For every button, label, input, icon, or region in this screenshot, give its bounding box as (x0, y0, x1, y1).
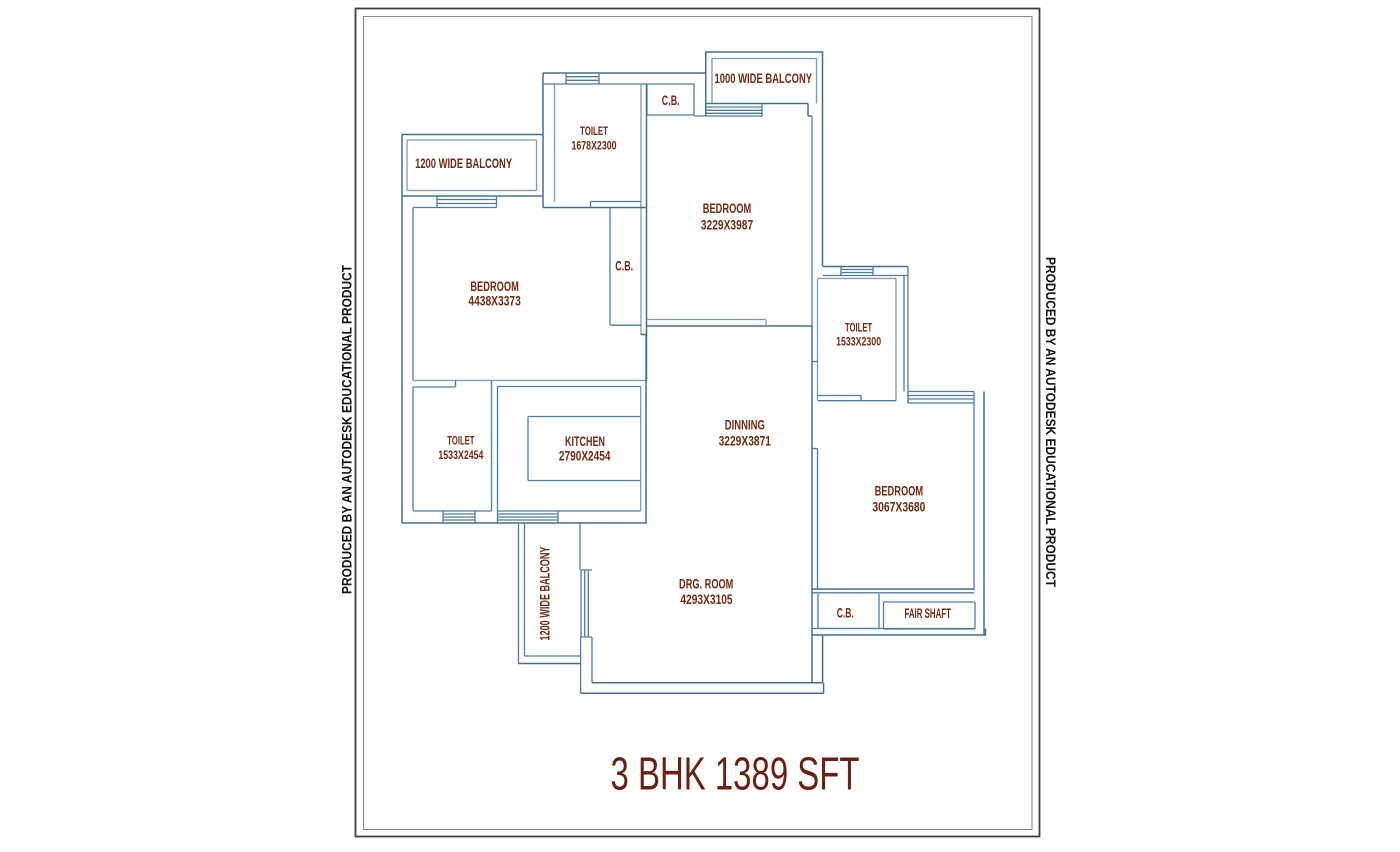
svg-text:1533X2300: 1533X2300 (836, 335, 881, 349)
svg-text:4293X3105: 4293X3105 (680, 592, 733, 607)
svg-text:3229X3987: 3229X3987 (701, 217, 753, 232)
svg-text:3067X3680: 3067X3680 (872, 500, 925, 515)
svg-text:TOILET: TOILET (845, 321, 873, 335)
svg-text:BEDROOM: BEDROOM (470, 279, 519, 294)
svg-text:1000 WIDE BALCONY: 1000 WIDE BALCONY (715, 71, 813, 86)
svg-text:KITCHEN: KITCHEN (565, 434, 605, 449)
svg-text:1200 WIDE BALCONY: 1200 WIDE BALCONY (538, 547, 553, 641)
svg-text:BEDROOM: BEDROOM (703, 201, 752, 216)
svg-text:TOILET: TOILET (580, 124, 608, 138)
svg-text:C.B.: C.B. (615, 259, 633, 274)
svg-text:PRODUCED BY AN AUTODESK EDUCAT: PRODUCED BY AN AUTODESK EDUCATIONAL PROD… (338, 265, 354, 594)
svg-text:2790X2454: 2790X2454 (559, 449, 611, 464)
svg-text:3229X3871: 3229X3871 (719, 433, 772, 448)
svg-text:DRG. ROOM: DRG. ROOM (679, 577, 733, 592)
svg-text:1533X2454: 1533X2454 (438, 448, 483, 462)
svg-text:TOILET: TOILET (447, 434, 475, 448)
svg-text:FAIR SHAFT: FAIR SHAFT (904, 606, 951, 621)
svg-text:4438X3373: 4438X3373 (468, 294, 521, 309)
svg-text:3 BHK 1389 SFT: 3 BHK 1389 SFT (611, 749, 860, 801)
svg-text:1678X2300: 1678X2300 (572, 138, 617, 152)
svg-text:C.B.: C.B. (662, 93, 680, 108)
svg-text:1200 WIDE BALCONY: 1200 WIDE BALCONY (415, 156, 512, 171)
svg-text:C.B.: C.B. (837, 606, 854, 621)
svg-text:BEDROOM: BEDROOM (875, 483, 924, 498)
svg-text:DINNING: DINNING (725, 418, 765, 433)
svg-text:PRODUCED BY AN AUTODESK EDUCAT: PRODUCED BY AN AUTODESK EDUCATIONAL PROD… (1043, 257, 1059, 587)
